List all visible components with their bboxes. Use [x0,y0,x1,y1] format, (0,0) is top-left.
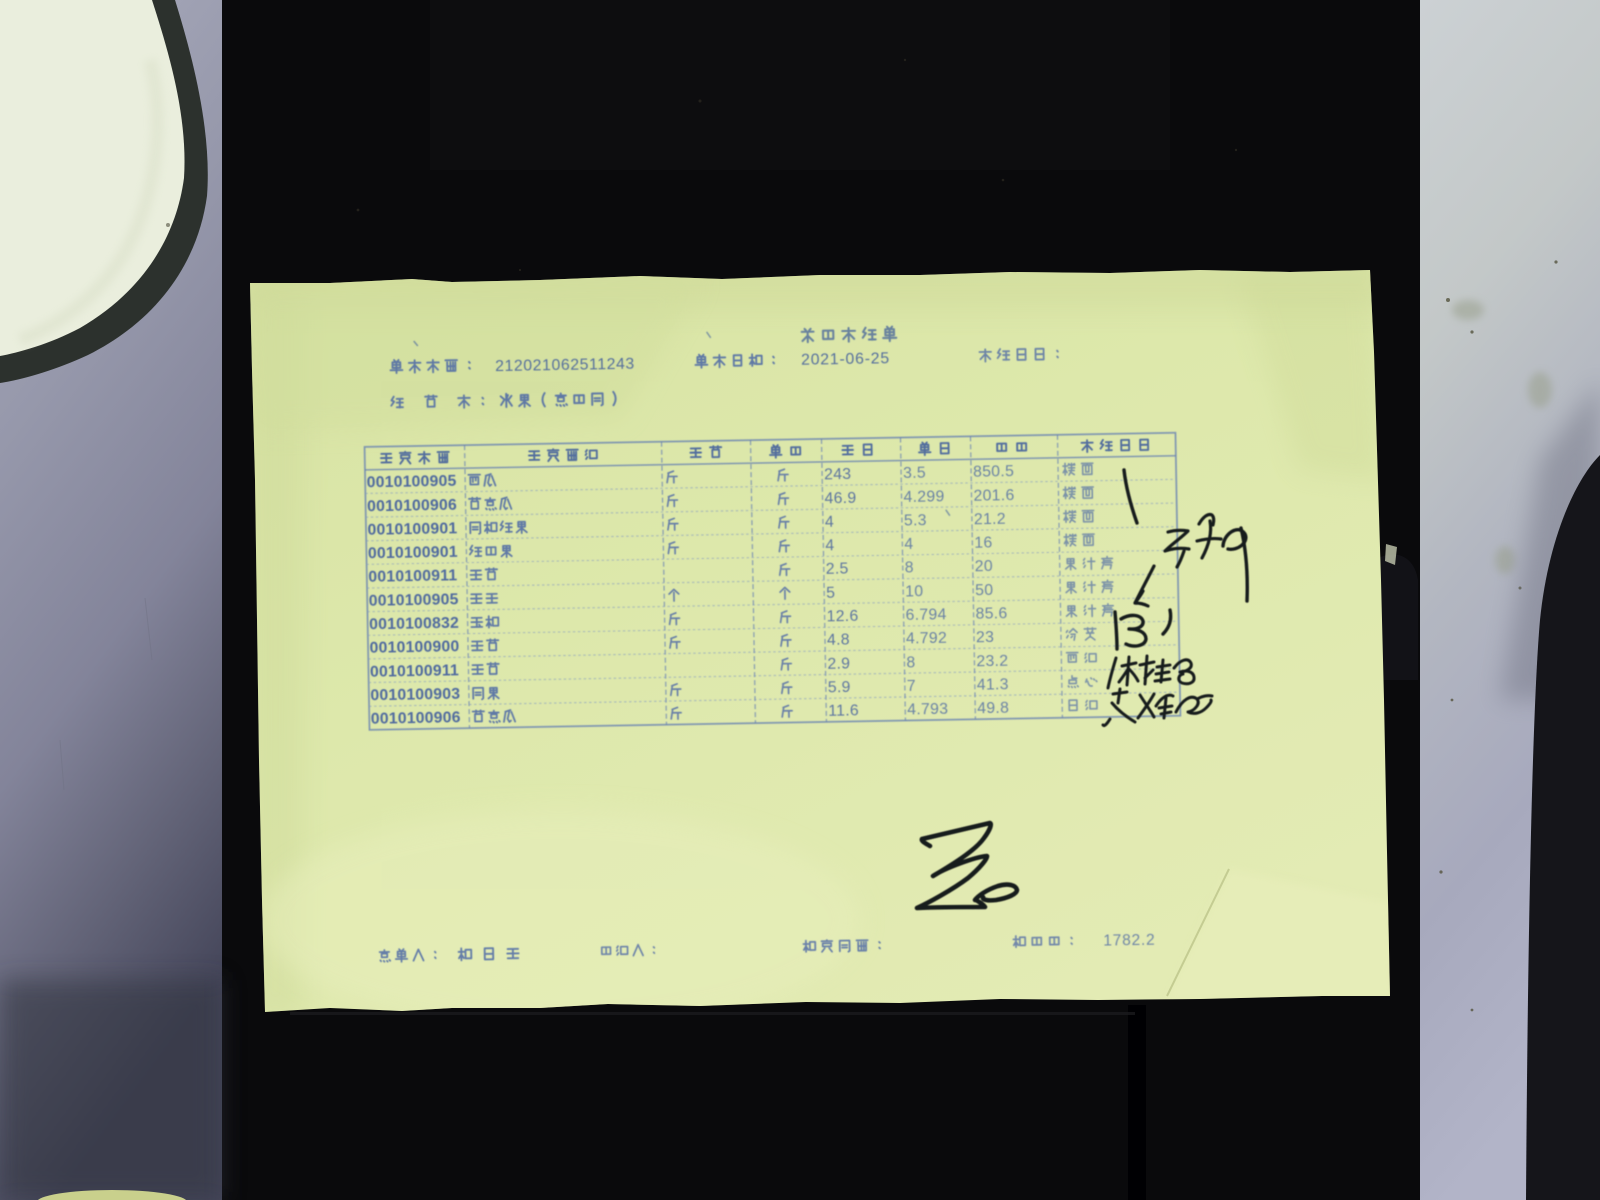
svg-text:7: 7 [907,678,916,695]
svg-text:4: 4 [825,514,834,531]
svg-text:850.5: 850.5 [973,463,1014,481]
svg-text:85.6: 85.6 [975,605,1007,623]
svg-text:4: 4 [825,537,834,554]
svg-text:3.5: 3.5 [903,465,926,482]
svg-text:0010100903: 0010100903 [370,686,460,705]
svg-text:2.9: 2.9 [827,655,850,672]
svg-text:0010100905: 0010100905 [369,591,459,610]
svg-text:0010100900: 0010100900 [369,638,459,657]
svg-text:10: 10 [905,583,923,600]
svg-text:46.9: 46.9 [824,490,856,508]
svg-text:0010100901: 0010100901 [367,520,457,539]
svg-text:0010100906: 0010100906 [367,497,457,516]
svg-text:12.6: 12.6 [826,608,858,626]
svg-text:0010100911: 0010100911 [370,662,459,681]
svg-text:23: 23 [976,629,994,646]
svg-text:4.8: 4.8 [827,632,850,649]
svg-text:5.3: 5.3 [904,512,927,529]
svg-text:6.794: 6.794 [905,606,946,624]
svg-text:2021-06-25: 2021-06-25 [801,350,890,369]
svg-text:11.6: 11.6 [828,702,859,720]
svg-text:0010100911: 0010100911 [368,568,457,587]
svg-text:212021062511243: 212021062511243 [495,356,635,375]
svg-text:5: 5 [826,585,835,602]
svg-text:0010100906: 0010100906 [371,709,461,728]
svg-text:0010100905: 0010100905 [367,473,457,492]
svg-text:243: 243 [824,466,852,483]
svg-text:4.792: 4.792 [906,630,947,648]
svg-text:50: 50 [975,582,993,599]
svg-text:41.3: 41.3 [977,676,1009,694]
svg-text:49.8: 49.8 [977,700,1009,718]
svg-text:4.793: 4.793 [907,701,948,719]
svg-text:21.2: 21.2 [974,511,1006,529]
svg-text:8: 8 [906,654,915,671]
svg-text:23.2: 23.2 [976,652,1008,670]
svg-text:16: 16 [974,535,992,552]
svg-text:4.299: 4.299 [903,488,944,506]
svg-text:201.6: 201.6 [973,487,1014,505]
svg-text:0010100901: 0010100901 [368,544,458,563]
svg-text:5.9: 5.9 [828,679,851,696]
svg-text:8: 8 [905,560,914,577]
svg-text:1782.2: 1782.2 [1103,931,1156,949]
svg-text:4: 4 [904,536,913,553]
svg-text:20: 20 [975,558,993,575]
svg-text:0010100832: 0010100832 [369,615,459,634]
svg-text:2.5: 2.5 [826,561,849,578]
